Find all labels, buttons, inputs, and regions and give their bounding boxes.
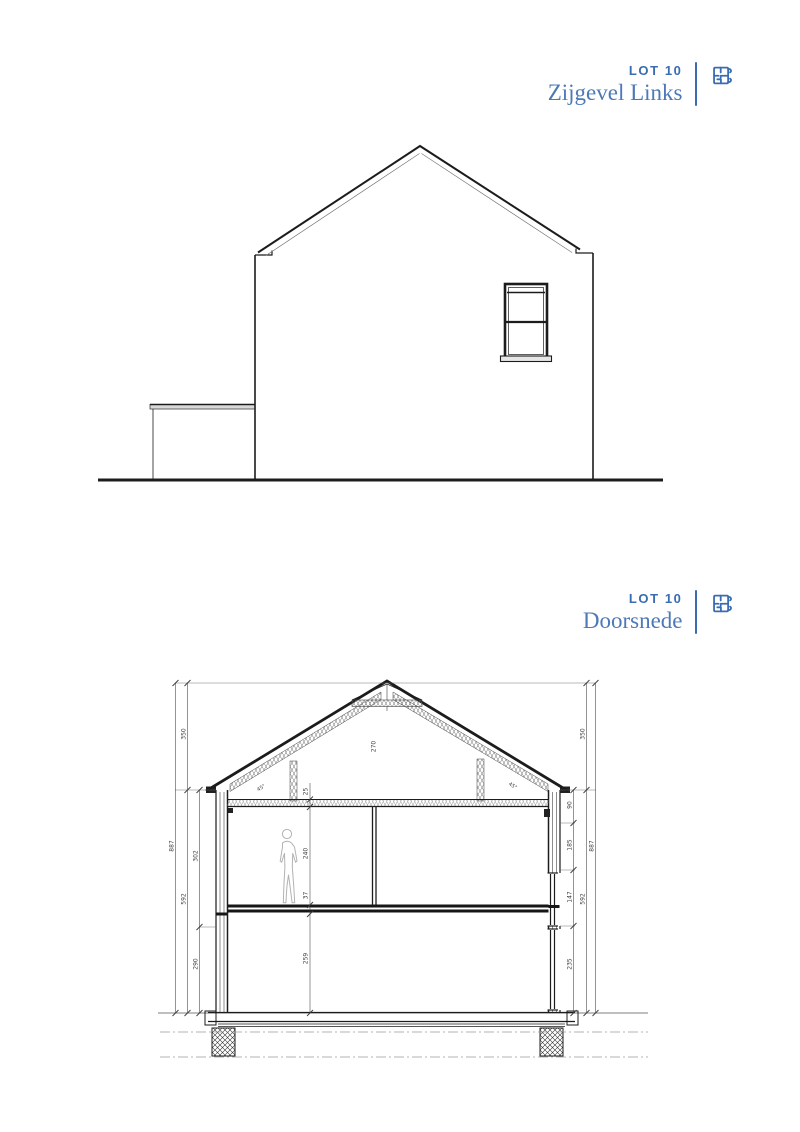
- dim-label-right-lower: 235: [567, 958, 574, 970]
- dim-label-left-outer: 887: [169, 840, 176, 852]
- window-sill: [501, 356, 552, 362]
- elevation-roof: [258, 146, 580, 256]
- dim-label-right-sill: 147: [567, 891, 574, 903]
- dim-label-right-outer: 887: [589, 840, 596, 852]
- elevation-drawing: [98, 146, 663, 480]
- section-left-wall: [206, 787, 228, 1014]
- section-floor-slab: [216, 905, 560, 916]
- dim-label-right-storey: 592: [580, 893, 587, 905]
- dim-label-floor-pack: 37: [303, 892, 310, 900]
- dim-label-room-height: 240: [303, 848, 310, 860]
- elevation-annex: [150, 405, 255, 480]
- elevation-window: [501, 284, 552, 362]
- slope-label-left: 45°: [256, 783, 267, 793]
- dim-label-ground-height: 259: [303, 953, 310, 965]
- section-attic-floor: [228, 800, 551, 818]
- human-figure: [280, 829, 297, 902]
- dim-label-left-roof: 350: [181, 728, 188, 740]
- dim-label-left-upper: 302: [193, 850, 200, 862]
- dimension-labels: 887 350 592 302 290 25 240 37 259 270 45…: [169, 728, 596, 970]
- dimension-lines: [176, 683, 596, 1013]
- drawings-canvas: 887 350 592 302 290 25 240 37 259 270 45…: [0, 0, 800, 1132]
- elevation-eaves: [255, 249, 593, 256]
- dim-label-ridge: 270: [371, 741, 378, 753]
- dim-label-left-lower: 290: [193, 958, 200, 970]
- dim-label-attic-floor: 25: [303, 788, 310, 796]
- section-drawing: 887 350 592 302 290 25 240 37 259 270 45…: [158, 680, 648, 1057]
- dim-label-right-head: 90: [567, 801, 574, 809]
- dim-label-left-storey: 592: [181, 893, 188, 905]
- slope-label-right: 45°: [507, 781, 518, 791]
- dimension-ticks: [173, 680, 599, 1016]
- dim-label-right-roof: 350: [580, 728, 587, 740]
- drawing-sheet: LOT 10 Zijgevel Links LOT 10 Doorsnede: [0, 0, 800, 1132]
- dim-label-right-window: 185: [567, 839, 574, 851]
- section-partition-wall: [373, 807, 377, 905]
- section-attic-posts: [290, 759, 484, 801]
